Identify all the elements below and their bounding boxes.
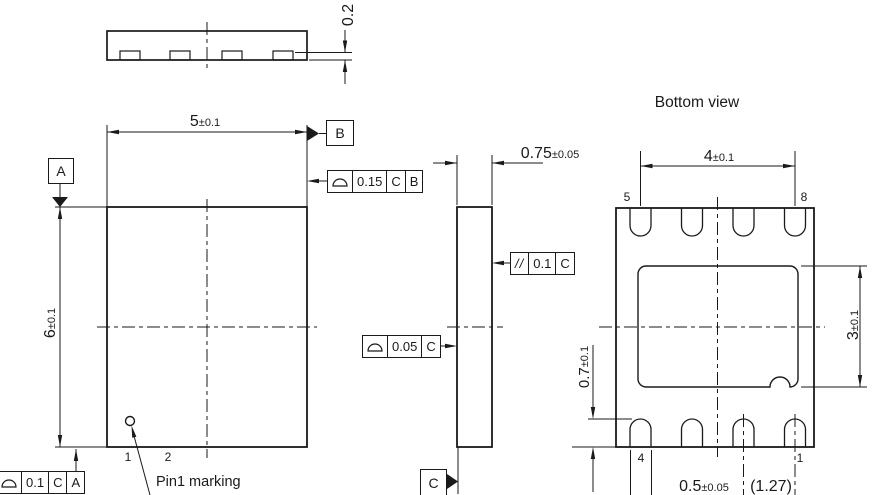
- pin-width-dimension-label: 0.5±0.05: [664, 477, 744, 495]
- pad-height-dimension-label: 3±0.1: [842, 295, 862, 355]
- profile-of-a-surface-icon: [328, 171, 352, 192]
- datum-b-leader: [307, 126, 326, 141]
- pin-length-dimension-label: 0.7±0.1: [572, 332, 592, 402]
- front-pin2-number: 2: [158, 450, 178, 463]
- fcf-profile-seating: 0.05 C: [362, 335, 441, 358]
- fcf-profile-bottom: 0.1 C A: [0, 471, 85, 494]
- bottom-view-title: Bottom view: [637, 92, 757, 110]
- fcf-profile-top: 0.15 C B: [327, 170, 423, 193]
- fcf-parallelism-leader: [492, 261, 510, 265]
- datum-a-box: A: [48, 158, 74, 184]
- bottom-pin4-number: 4: [631, 451, 651, 464]
- front-width-dimension-label: 5±0.1: [165, 111, 245, 130]
- pin1-marking-dot: [126, 417, 135, 426]
- profile-of-a-surface-icon: [363, 336, 387, 357]
- front-pin1-number: 1: [118, 450, 138, 463]
- top-view-outline: [107, 22, 307, 68]
- datum-a-leader: [52, 182, 68, 207]
- drawing-linework: [0, 0, 880, 495]
- fcf-parallelism: // 0.1 C: [510, 252, 575, 275]
- pin-span-dimension-label: 4±0.1: [679, 146, 759, 165]
- side-view-outline: [447, 207, 503, 447]
- front-height-dimension-label: 6±0.1: [39, 293, 59, 353]
- thickness-dimension: [433, 155, 543, 205]
- standoff-dimension-label: 0.2: [337, 0, 357, 45]
- pitch-dimension-label: (1.27): [741, 476, 801, 495]
- profile-of-a-surface-icon: [0, 472, 21, 493]
- bottom-pin8-number: 8: [794, 190, 814, 203]
- pin1-marking-note: Pin1 marking: [156, 474, 256, 489]
- bottom-pin5-number: 5: [617, 190, 637, 203]
- front-view-outline: [97, 199, 317, 458]
- fcf-top-leader: [307, 179, 327, 183]
- datum-b-box: B: [326, 120, 354, 146]
- parallelism-icon: //: [511, 253, 528, 274]
- bottom-pin1-number: 1: [790, 451, 810, 464]
- front-width-dimension: [107, 125, 307, 207]
- datum-c-box: C: [420, 469, 447, 495]
- thickness-dimension-label: 0.75±0.05: [505, 143, 595, 162]
- package-outline-drawing: 0.2 5±0.1 6±0.1 A B C 0.15 C B 0.1 C A /…: [0, 0, 880, 495]
